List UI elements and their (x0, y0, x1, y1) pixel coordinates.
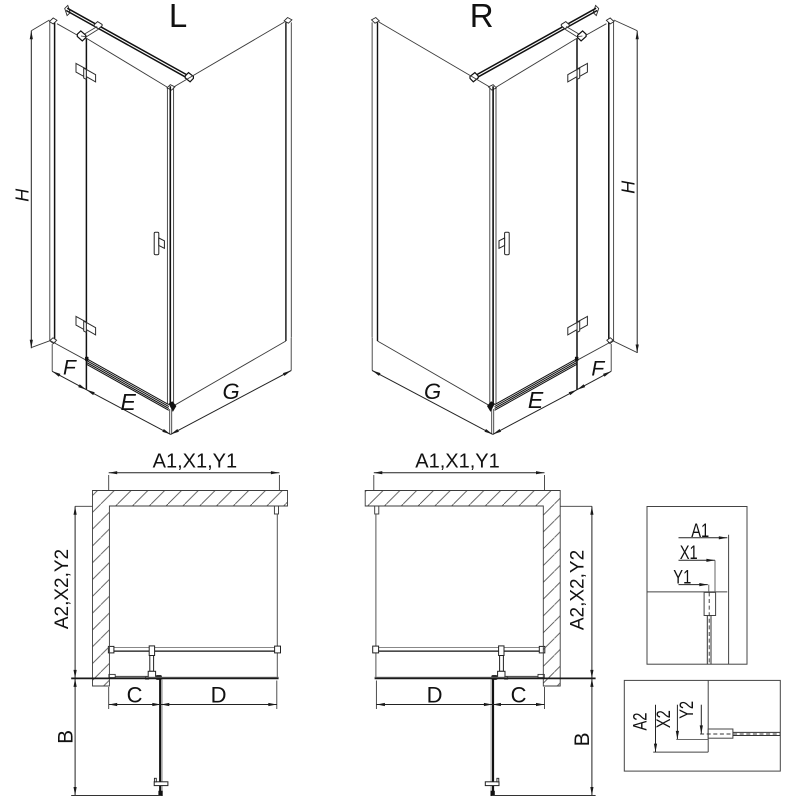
svg-text:F: F (63, 357, 77, 380)
svg-text:X2: X2 (653, 710, 675, 728)
svg-text:X1: X1 (680, 542, 698, 564)
svg-text:Y2: Y2 (676, 701, 698, 719)
svg-text:H: H (618, 180, 638, 194)
svg-text:H: H (13, 188, 33, 202)
svg-text:E: E (528, 387, 544, 413)
svg-text:L: L (169, 0, 187, 34)
svg-text:F: F (591, 357, 605, 380)
svg-text:A2,X2,Y2: A2,X2,Y2 (52, 549, 73, 629)
svg-text:R: R (470, 0, 494, 34)
svg-text:A1,X1,Y1: A1,X1,Y1 (415, 450, 500, 472)
svg-text:A1,X1,Y1: A1,X1,Y1 (153, 450, 238, 472)
svg-text:B: B (54, 730, 77, 744)
svg-text:Y1: Y1 (673, 567, 691, 589)
svg-text:A2: A2 (629, 713, 651, 731)
svg-text:B: B (571, 732, 594, 746)
svg-text:A1: A1 (691, 520, 709, 542)
svg-text:A2,X2,Y2: A2,X2,Y2 (568, 550, 589, 630)
svg-text:C: C (511, 682, 527, 707)
svg-text:D: D (211, 682, 227, 707)
svg-text:C: C (127, 682, 143, 707)
svg-text:D: D (427, 682, 443, 707)
svg-text:G: G (222, 379, 239, 404)
svg-text:G: G (424, 379, 441, 404)
svg-text:E: E (121, 389, 137, 415)
